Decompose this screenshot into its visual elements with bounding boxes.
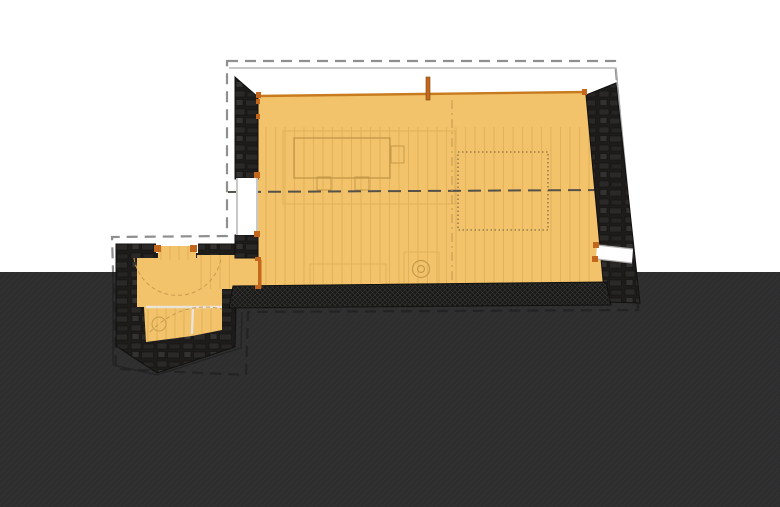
mullion-post <box>426 77 430 100</box>
stone-wall-bottom <box>229 282 611 308</box>
site-plan-drawing <box>0 0 780 507</box>
floor-plan-canvas <box>0 0 780 507</box>
hall-door-leaf <box>258 260 262 288</box>
stone-wall-left-lower <box>235 235 258 258</box>
